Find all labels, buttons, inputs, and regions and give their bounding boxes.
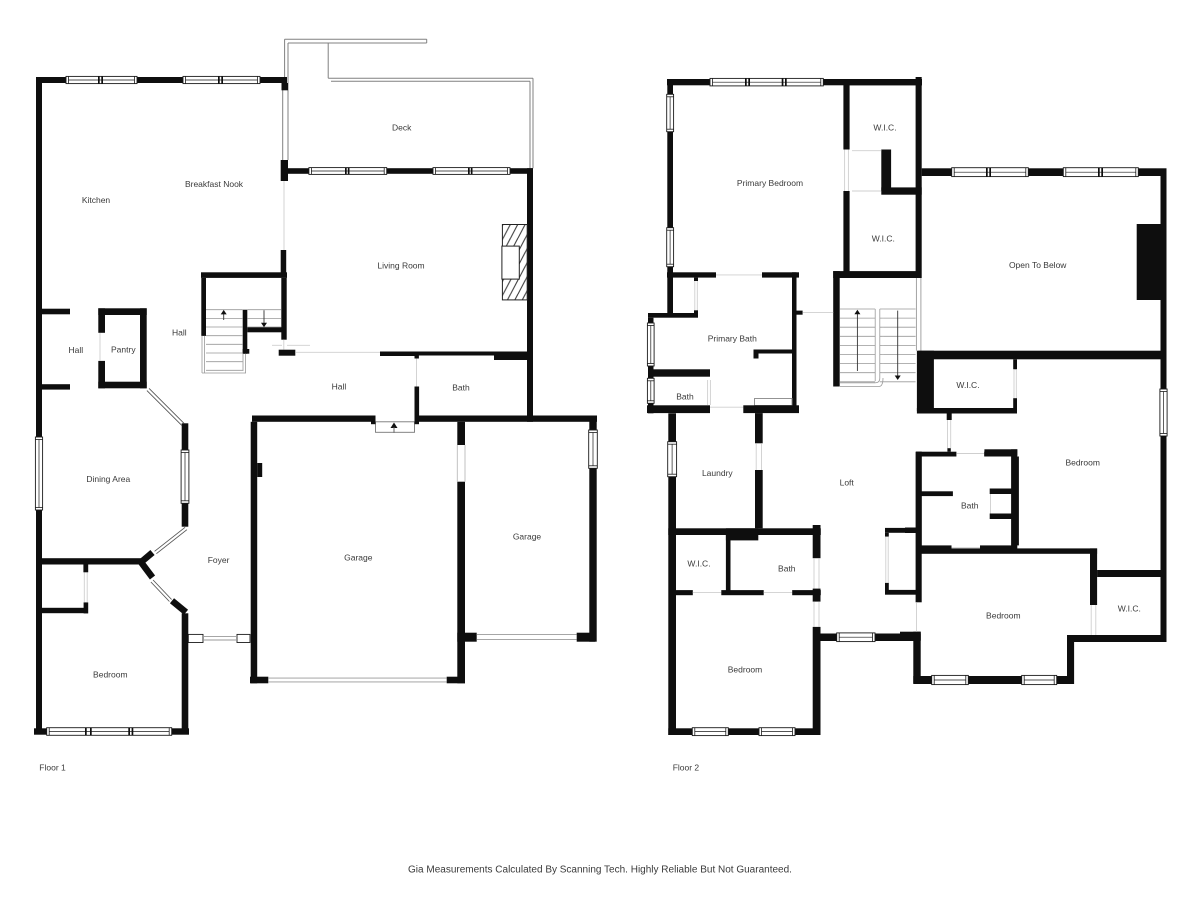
svg-text:Bedroom: Bedroom: [93, 670, 128, 680]
svg-text:Floor 2: Floor 2: [673, 762, 700, 772]
svg-text:Primary Bath: Primary Bath: [708, 334, 757, 344]
svg-text:Loft: Loft: [840, 477, 855, 487]
svg-text:Bedroom: Bedroom: [1065, 458, 1100, 468]
svg-text:Bath: Bath: [778, 564, 796, 574]
svg-text:W.I.C.: W.I.C.: [1118, 603, 1141, 613]
svg-text:W.I.C.: W.I.C.: [956, 380, 979, 390]
svg-text:Breakfast Nook: Breakfast Nook: [185, 179, 244, 189]
svg-text:Bath: Bath: [452, 383, 470, 393]
svg-text:Bath: Bath: [676, 392, 694, 402]
svg-text:Hall: Hall: [172, 327, 187, 337]
svg-text:Kitchen: Kitchen: [82, 195, 111, 205]
svg-text:Dining Area: Dining Area: [86, 474, 130, 484]
svg-text:Garage: Garage: [344, 553, 373, 563]
svg-text:W.I.C.: W.I.C.: [687, 558, 710, 568]
svg-text:Hall: Hall: [332, 382, 347, 392]
svg-text:Pantry: Pantry: [111, 344, 136, 354]
svg-text:W.I.C.: W.I.C.: [873, 123, 896, 133]
svg-text:Bedroom: Bedroom: [728, 664, 763, 674]
svg-text:Living Room: Living Room: [377, 261, 424, 271]
svg-text:Bedroom: Bedroom: [986, 611, 1021, 621]
svg-text:Foyer: Foyer: [208, 555, 230, 565]
svg-text:Hall: Hall: [68, 345, 83, 355]
svg-text:Floor 1: Floor 1: [39, 762, 66, 772]
svg-text:Gia Measurements Calculated By: Gia Measurements Calculated By Scanning …: [408, 865, 792, 876]
svg-text:Deck: Deck: [392, 123, 412, 133]
svg-text:W.I.C.: W.I.C.: [872, 234, 895, 244]
svg-text:Laundry: Laundry: [702, 468, 733, 478]
svg-text:Bath: Bath: [961, 501, 979, 511]
svg-text:Open To Below: Open To Below: [1009, 260, 1067, 270]
svg-text:Primary Bedroom: Primary Bedroom: [737, 178, 803, 188]
svg-text:Garage: Garage: [513, 532, 542, 542]
